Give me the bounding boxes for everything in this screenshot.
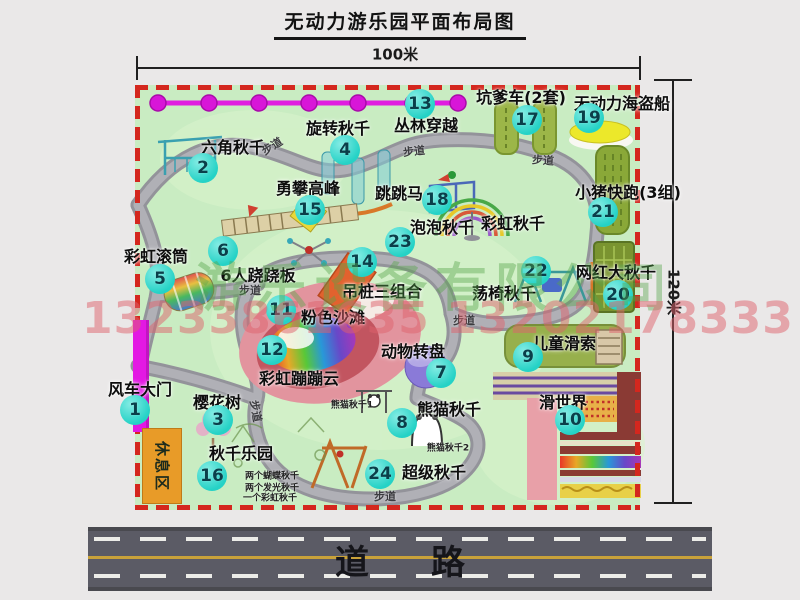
jungle-crossing-line: [150, 95, 466, 111]
animal-turntable-shape: [405, 346, 447, 388]
watermark-phone: 13233861635 13202178333: [82, 293, 794, 344]
cherry-tree-shape: [196, 410, 231, 447]
rainbow-swing-shape: [436, 200, 508, 241]
screenshot-stage: 无动力游乐园平面布局图: [0, 0, 800, 600]
super-swing-shape: [312, 442, 366, 488]
park-border-bottom: [135, 505, 640, 510]
park-border-top: [135, 85, 640, 90]
rest-area-label: 休息区: [152, 440, 173, 491]
rest-area: 休息区: [142, 428, 182, 504]
pig-run-track: [596, 146, 629, 234]
pirate-ship-shape: [569, 121, 633, 150]
